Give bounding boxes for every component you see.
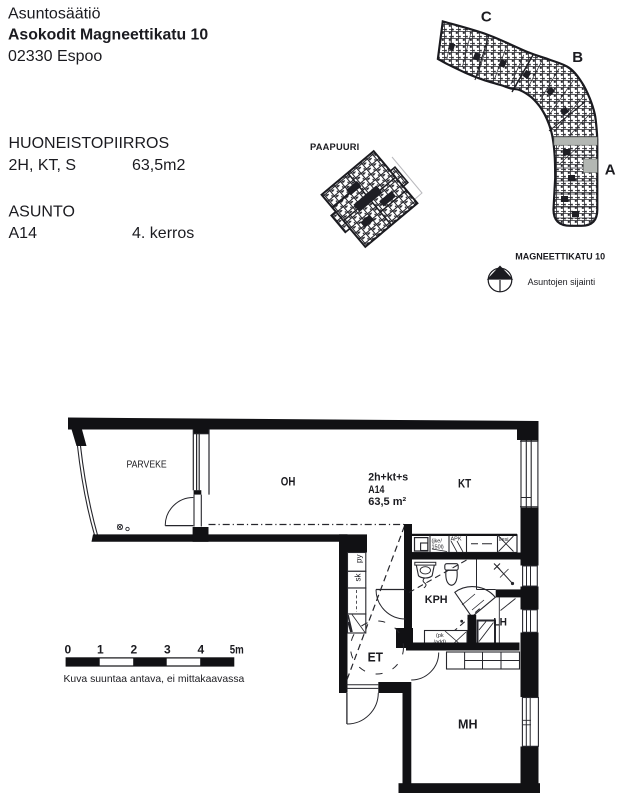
svg-text:A14: A14 (368, 484, 385, 496)
svg-text:02330 Espoo: 02330 Espoo (8, 48, 102, 65)
svg-text:(pk: (pk (436, 633, 444, 639)
svg-text:PARVEKE: PARVEKE (127, 458, 167, 470)
svg-text:MAGNEETTIKATU 10: MAGNEETTIKATU 10 (515, 252, 605, 262)
svg-text:MH: MH (458, 717, 478, 732)
svg-text:py: py (355, 555, 364, 563)
svg-text:A14: A14 (9, 225, 38, 242)
svg-text:C: C (481, 8, 492, 25)
svg-text:2H, KT, S: 2H, KT, S (9, 157, 77, 174)
svg-text:APK: APK (451, 537, 462, 543)
svg-text:4: 4 (198, 642, 205, 656)
svg-text:KPH: KPH (425, 594, 448, 606)
svg-text:2h+kt+s: 2h+kt+s (368, 472, 408, 484)
svg-text:Asuntosäätiö: Asuntosäätiö (8, 6, 101, 23)
svg-text:5m: 5m (230, 642, 244, 656)
svg-text:ET: ET (368, 649, 383, 664)
svg-text:OH: OH (281, 476, 296, 488)
svg-text:2: 2 (131, 642, 138, 656)
svg-text:Asokodit Magneettikatu 10: Asokodit Magneettikatu 10 (8, 26, 208, 43)
svg-text:KT: KT (458, 476, 472, 490)
svg-text:PAAPUURI: PAAPUURI (310, 142, 359, 152)
svg-text:Asuntojen sijainti: Asuntojen sijainti (528, 277, 596, 287)
svg-text:1: 1 (97, 642, 104, 656)
svg-text:4. kerros: 4. kerros (132, 225, 194, 242)
svg-text:63,5m2: 63,5m2 (132, 157, 185, 174)
svg-text:63,5 m²: 63,5 m² (368, 496, 406, 508)
svg-text:LH: LH (493, 617, 507, 629)
svg-text:A: A (605, 161, 616, 178)
svg-text:sk: sk (354, 573, 363, 582)
svg-text:HUONEISTOPIIRROS: HUONEISTOPIIRROS (9, 135, 170, 152)
svg-text:ASUNTO: ASUNTO (9, 203, 75, 220)
svg-text:3: 3 (164, 642, 171, 656)
svg-text:Kuva suuntaa antava, ei mittak: Kuva suuntaa antava, ei mittakaavassa (64, 674, 245, 685)
svg-text:B: B (572, 49, 583, 66)
svg-text:0: 0 (65, 642, 72, 656)
